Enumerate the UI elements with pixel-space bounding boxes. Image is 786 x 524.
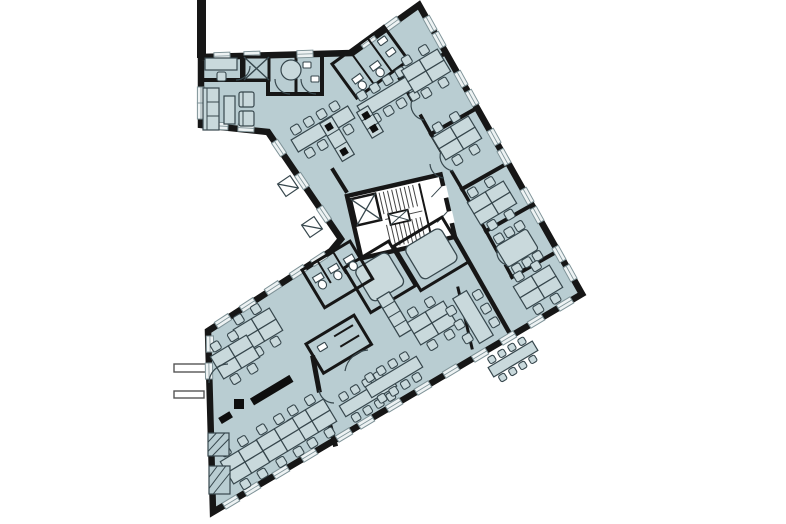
hatch: [208, 433, 229, 456]
exterior-wall-stub: [174, 391, 204, 398]
hatch: [209, 466, 230, 494]
sink: [311, 76, 319, 82]
sink: [303, 62, 311, 68]
solid-table: [234, 399, 244, 409]
party-wall: [197, 0, 206, 58]
exterior-wall-stub: [174, 364, 207, 372]
round-table: [281, 60, 301, 80]
window-opening: [297, 50, 313, 58]
elevator: [244, 57, 269, 80]
open-door: [302, 217, 323, 238]
window-opening: [205, 363, 212, 379]
floor-plan-svg: [0, 0, 786, 524]
floorplan-canvas: [0, 0, 786, 524]
open-door: [278, 176, 299, 197]
